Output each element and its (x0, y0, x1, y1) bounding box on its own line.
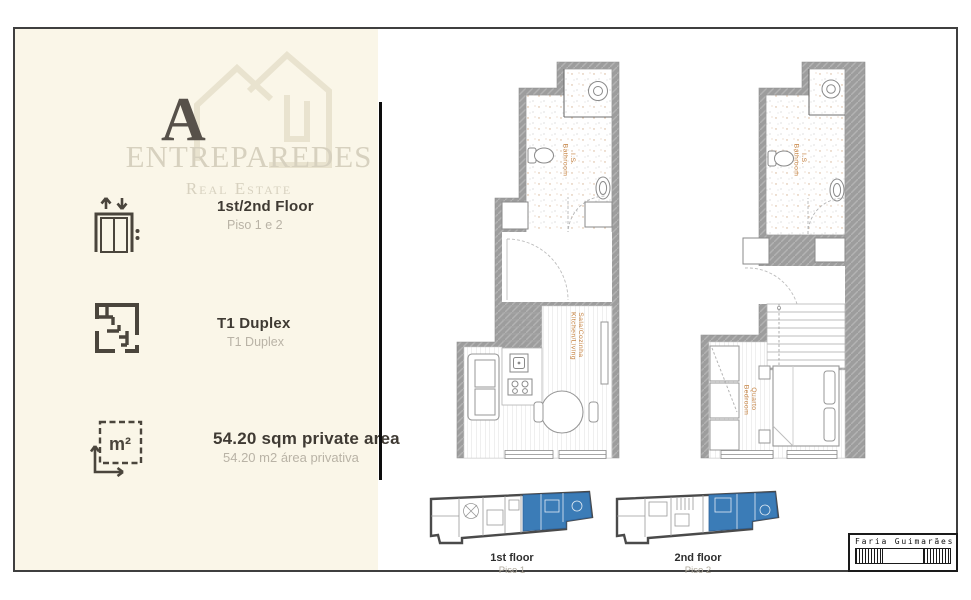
nightstand (759, 430, 770, 443)
barcode-middle (882, 549, 923, 563)
sink-icon (830, 179, 844, 201)
svg-text:Sala/Cozinha Kitchen/L: Sala/Cozinha Kitchen/Living (570, 312, 585, 360)
stove-icon (508, 379, 532, 395)
spec-typology: T1 Duplex T1 Duplex (93, 301, 373, 361)
agency-stamp: Faria Guimarães (848, 533, 958, 572)
elevator-icon (93, 194, 143, 254)
area-icon: m² (89, 419, 145, 477)
floorplan-2nd-floor: I.S. Bathroom (697, 60, 875, 466)
thumbnail-2-sublabel: Piso 2 (611, 565, 785, 576)
thumbnail-1st-floor-plan (425, 486, 599, 546)
kitchen-sink-icon (510, 354, 528, 372)
thumbnail-1-sublabel: Piso 1 (425, 565, 599, 576)
svg-text:Quarto Bedroom: Quarto Bedroom (743, 385, 758, 415)
room-label-bedroom-en: Bedroom (743, 385, 750, 415)
toilet-icon (768, 151, 794, 166)
room-label-bathroom2-en: Bathroom (793, 144, 800, 177)
wardrobe-icon (710, 346, 739, 450)
spec-floor-label: 1st/2nd Floor (217, 198, 314, 215)
sofa-icon (468, 354, 499, 420)
info-panel: A ENTREPAREDES Real Estate 1st/2nd Floor… (15, 29, 378, 570)
floorplan-icon (93, 301, 141, 355)
cabinet (601, 322, 608, 384)
spec-area: m² 54.20 sqm private area 54.20 m2 área … (89, 419, 379, 479)
spec-area-label: 54.20 sqm private area (213, 429, 400, 449)
brand-name: ENTREPAREDES (99, 139, 399, 175)
room-label-bathroom-en: Bathroom (562, 144, 569, 177)
room-label-bedroom-pt: Quarto (750, 387, 757, 410)
thumbnail-2-label: 2nd floor (611, 552, 785, 564)
spec-floor-sublabel: Piso 1 e 2 (227, 218, 283, 232)
agency-name: Faria Guimarães (855, 537, 951, 546)
spec-typology-sublabel: T1 Duplex (227, 335, 284, 349)
spec-area-sublabel: 54.20 m2 área privativa (223, 450, 359, 465)
plan-sheet: A ENTREPAREDES Real Estate 1st/2nd Floor… (13, 27, 958, 572)
room-label-living-en: Kitchen/Living (570, 312, 577, 360)
thumbnail-2nd-floor: 2nd floor Piso 2 (611, 486, 785, 576)
stairs-2 (767, 304, 845, 368)
washer-icon (822, 80, 840, 98)
thumbnail-1st-floor: 1st floor Piso 1 (425, 486, 599, 576)
facade-barcode-icon (855, 548, 951, 564)
washer-icon (589, 82, 608, 101)
bed-icon (773, 366, 839, 446)
toilet-icon (528, 148, 554, 163)
nightstand (759, 366, 770, 379)
area-icon-label: m² (109, 434, 131, 454)
spec-floor: 1st/2nd Floor Piso 1 e 2 (93, 194, 373, 254)
room-label-bathroom-pt: I.S. (569, 153, 576, 165)
room-label-bathroom2-pt: I.S. (800, 153, 807, 165)
thumbnail-1-label: 1st floor (425, 552, 599, 564)
vertical-divider (379, 102, 382, 480)
spec-typology-label: T1 Duplex (217, 315, 290, 332)
floorplan-1st-floor: I.S. Bathroom (449, 60, 627, 466)
barcode-left (856, 549, 882, 563)
thumbnail-2nd-floor-plan (611, 486, 785, 546)
room-label-living-pt: Sala/Cozinha (577, 312, 584, 357)
barcode-right (924, 549, 950, 563)
